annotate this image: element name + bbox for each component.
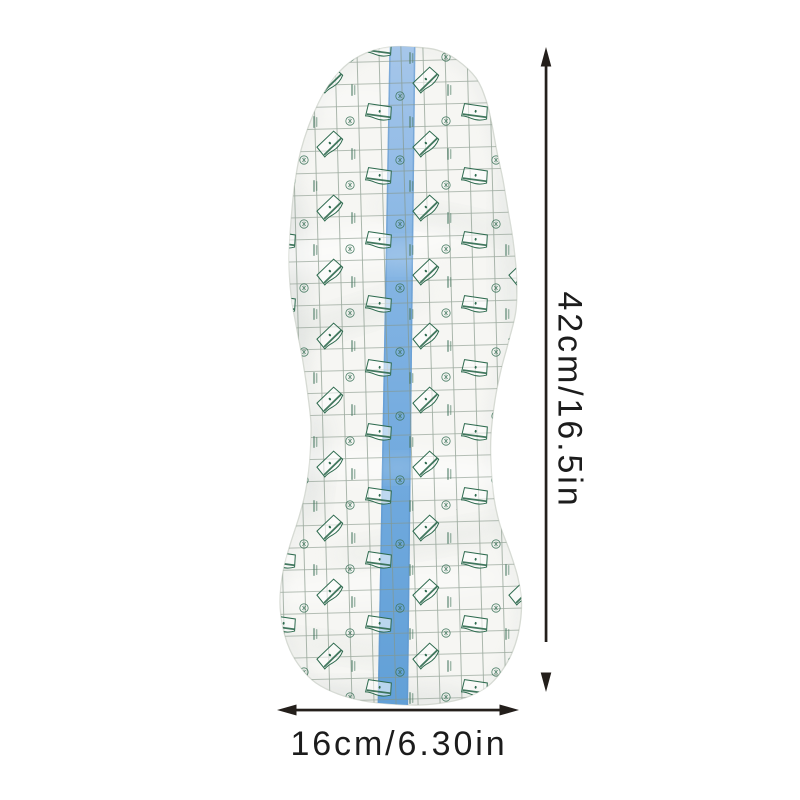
svg-text:16cm/6.30in: 16cm/6.30in	[290, 725, 507, 763]
svg-text:42cm/16.5in: 42cm/16.5in	[551, 291, 589, 508]
